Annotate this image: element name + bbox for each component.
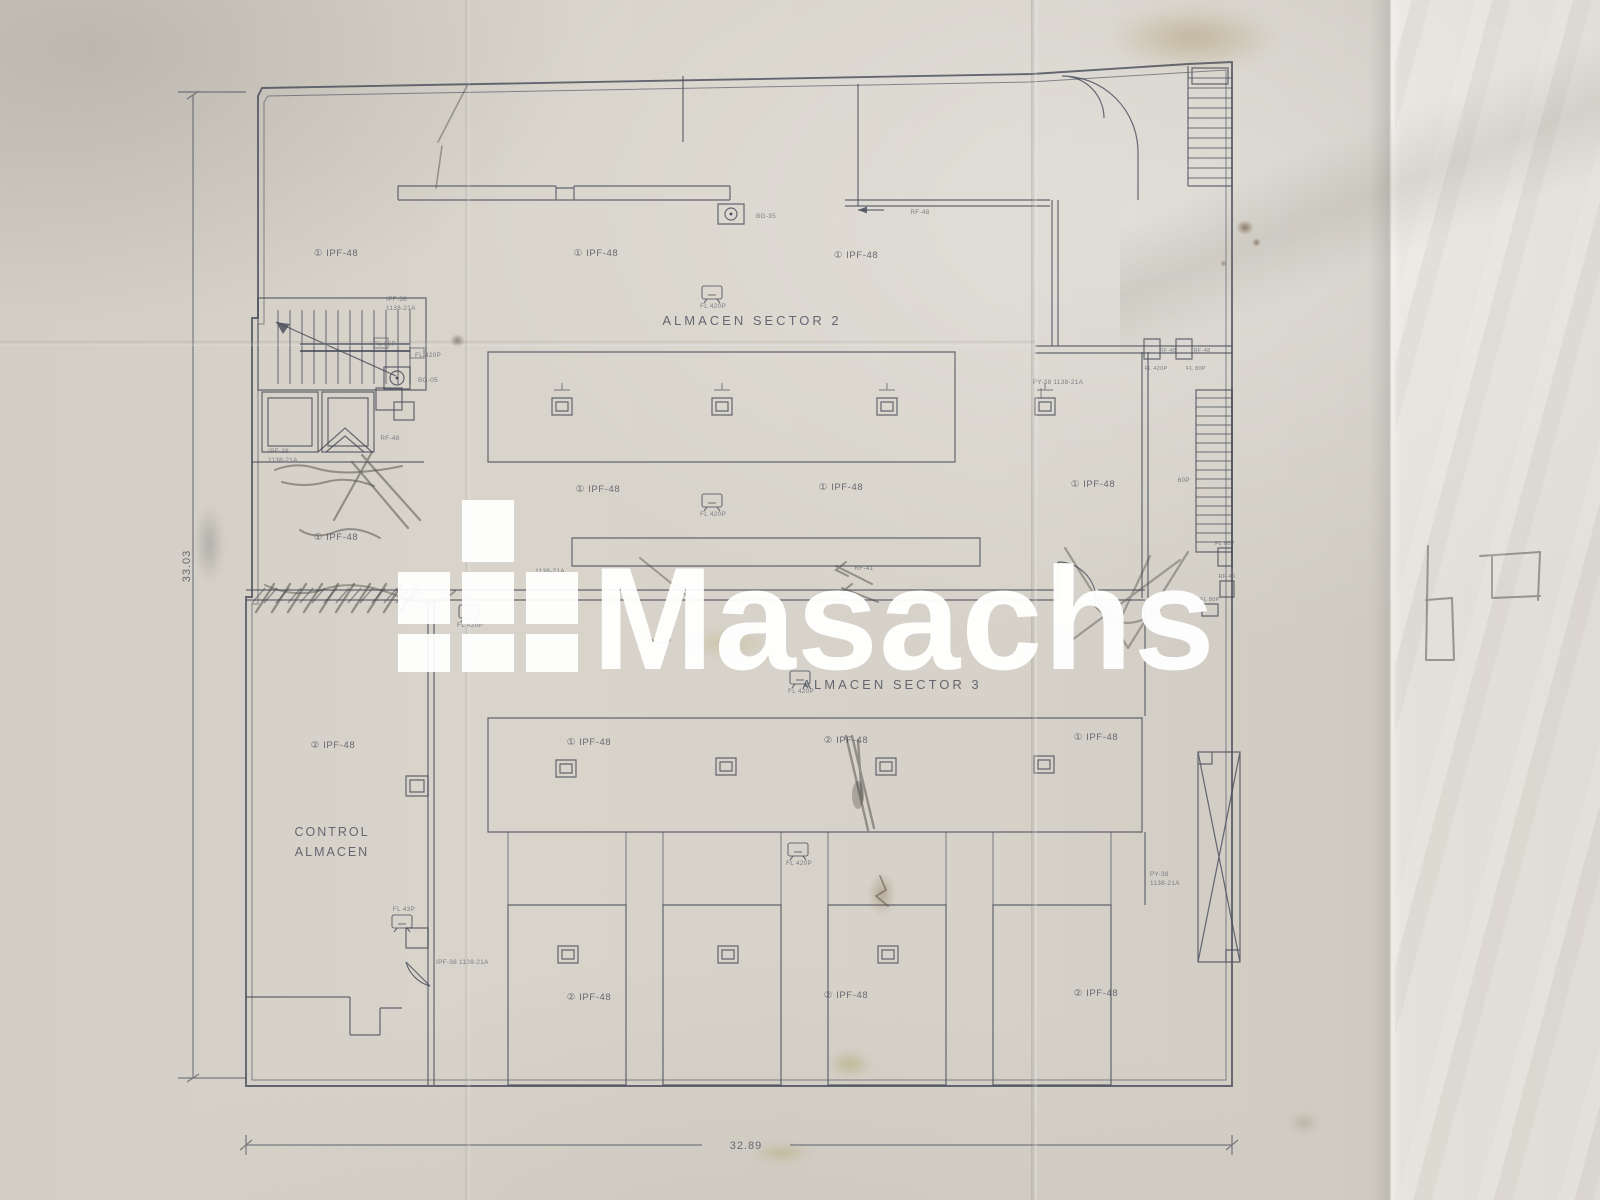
label-fl420p: FL 420P (700, 511, 726, 518)
label-ipf48: ① IPF-48 (834, 250, 878, 261)
label-py38: PY-38 (1150, 871, 1169, 878)
right-column-fixtures (1202, 548, 1234, 616)
label-py38: PY-38 1138-21A (1033, 379, 1084, 386)
fl420p-icon (702, 494, 722, 511)
control-room-title: ALMACEN (295, 845, 369, 859)
label-rf48: RF-48 (380, 435, 399, 442)
label-ipf48: ① IPF-48 (574, 248, 618, 259)
label-ipf48: ② IPF-48 (311, 740, 355, 751)
dim-left: 33.03 (181, 550, 193, 583)
elevator-shafts (262, 388, 402, 452)
label-ipf38: IPF-38 (268, 448, 289, 455)
label-ipf48: ① IPF-48 (314, 532, 358, 543)
label-fl420p: FL 420P (786, 860, 812, 867)
label-ipf48: ① IPF-48 (1071, 479, 1115, 490)
label-rf48: RF-48 (910, 209, 929, 216)
label-1138-21a: 1138-21A (535, 568, 565, 575)
label-ipf48: ① IPF-48 (314, 248, 358, 259)
label-rf46: RF-46 (1218, 574, 1235, 580)
label-ipf48: ② IPF-48 (567, 992, 611, 1003)
label-bg35: BG-35 (756, 213, 776, 220)
label-ipf48: ① IPF-48 (819, 482, 863, 493)
label-ipf48: ② IPF-48 (1074, 988, 1118, 999)
label-fl80p: FL 80P (1200, 597, 1220, 603)
label-ipf48: ② IPF-48 (824, 990, 868, 1001)
dim-bottom: 32.89 (730, 1140, 763, 1152)
rack-middle (572, 538, 980, 566)
label-ipf48: ① IPF-48 (576, 484, 620, 495)
fold-crease-horizontal (0, 341, 1035, 346)
label-bg05: BG-05 (418, 377, 438, 384)
rack-sector2 (488, 352, 955, 462)
outer-wall (246, 62, 1232, 1086)
label-1138-21a: 1138-21A (1150, 880, 1180, 887)
label-fl420p: FL 420P (788, 688, 814, 695)
sector2-title: ALMACEN SECTOR 2 (662, 313, 841, 328)
right-stair (1196, 390, 1232, 552)
control-room-title: CONTROL (294, 825, 369, 839)
label-fl420p: FL 420P (415, 352, 441, 359)
braced-panel (1198, 752, 1240, 962)
label-fl43p: FL 43P (393, 906, 415, 913)
label-fl80p: FL 80P (1215, 541, 1235, 547)
label-rf41: RF-41 (854, 565, 873, 572)
paper-crease (1120, 0, 1600, 400)
label-ipf38-inline: IPF-38 1138-21A (436, 959, 489, 966)
sector3-title: ALMACEN SECTOR 3 (802, 677, 981, 692)
door-swing-control (406, 962, 430, 986)
label-ipf38: IPF-38 (386, 296, 407, 303)
label-1138-21a: 1138-21A (268, 457, 298, 464)
photographed-blueprint: ① IPF-48 ① IPF-48 ① IPF-48 ① IPF-48 ① IP… (0, 0, 1600, 1200)
label-60p: 60P (1178, 477, 1190, 484)
fl420p-icon (459, 605, 479, 622)
label-1138-21a: 1138-21A (386, 305, 416, 312)
label-fl420p: FL 420P (457, 622, 483, 629)
rack-sector3 (488, 718, 1142, 832)
label-fl420p: FL 420P (700, 303, 726, 310)
label-ipf48: ① IPF-48 (567, 737, 611, 748)
fl420p-icon (788, 843, 808, 860)
label-ipf48: ① IPF-48 (1074, 732, 1118, 743)
fl43p-icon (392, 915, 412, 932)
fl420p-icon (702, 286, 722, 303)
